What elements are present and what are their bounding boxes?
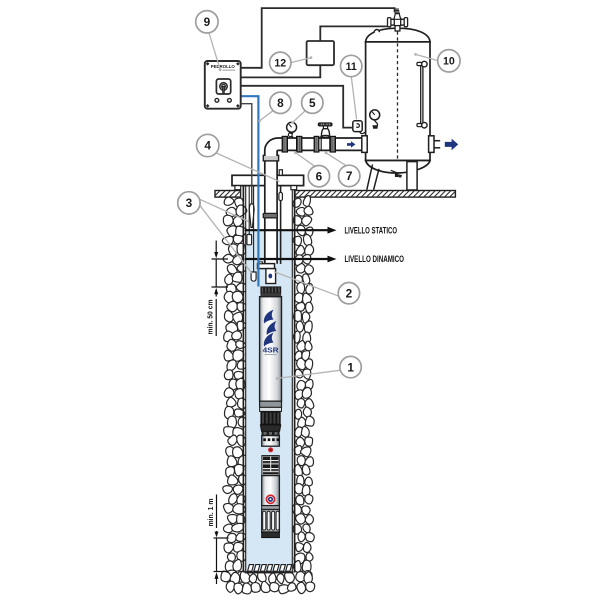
svg-text:min. 1 m: min. 1 m — [206, 498, 215, 526]
svg-text:4: 4 — [204, 139, 211, 153]
svg-text:4SR: 4SR — [263, 346, 280, 355]
svg-text:9: 9 — [204, 15, 211, 29]
svg-text:PEDROLLO: PEDROLLO — [211, 64, 235, 69]
svg-text:7: 7 — [346, 169, 353, 183]
svg-text:LIVELLO DINAMICO: LIVELLO DINAMICO — [345, 254, 405, 264]
svg-text:min. 50 cm: min. 50 cm — [206, 299, 215, 334]
svg-text:11: 11 — [346, 61, 357, 73]
svg-text:6: 6 — [316, 169, 323, 183]
svg-text:12: 12 — [274, 58, 286, 70]
svg-text:2: 2 — [346, 286, 353, 300]
svg-text:8: 8 — [277, 96, 284, 110]
svg-text:3: 3 — [186, 196, 193, 210]
svg-text:1: 1 — [347, 360, 354, 374]
svg-text:5: 5 — [309, 96, 316, 110]
svg-text:10: 10 — [443, 56, 455, 68]
svg-text:LIVELLO STATICO: LIVELLO STATICO — [345, 225, 398, 235]
